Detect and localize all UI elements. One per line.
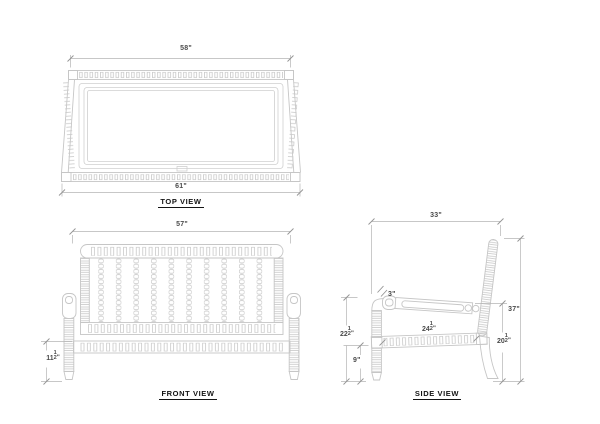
dim-line-22-5: [341, 295, 366, 385]
dim-label-back-leg-height: 2012": [489, 334, 519, 345]
dim-label-width: 57": [170, 221, 194, 229]
drawing-sheet: 58" 61" TOP VIEW 57" 1112" FRONT VIEW 33…: [0, 0, 600, 424]
dim-line-57: [70, 229, 294, 244]
side-view-title: SIDE VIEW: [382, 389, 492, 398]
dim-label-front-width: 61": [169, 183, 193, 191]
front-view-title: FRONT VIEW: [133, 389, 243, 398]
dim-label-seat-depth: 2412": [414, 322, 444, 333]
dim-label-arm-height: 2212": [332, 327, 362, 338]
dim-label-total-height: 37": [502, 306, 526, 314]
dim-label-depth: 33": [424, 212, 448, 220]
dim-line-3: [378, 286, 388, 297]
dim-line-58: [68, 55, 294, 68]
side-view-drawing: [341, 219, 525, 385]
dim-label-leg-height: 1112": [38, 351, 68, 362]
dim-line-33: [369, 219, 504, 295]
technical-drawing: [0, 0, 600, 424]
top-view-drawing: [59, 55, 303, 197]
dim-label-seat-clearance: 9": [353, 357, 361, 365]
dim-label-arm-front: 3": [388, 291, 396, 299]
front-view-drawing: [41, 229, 301, 385]
dim-label-back-width: 58": [174, 45, 198, 53]
top-view-title: TOP VIEW: [126, 197, 236, 206]
